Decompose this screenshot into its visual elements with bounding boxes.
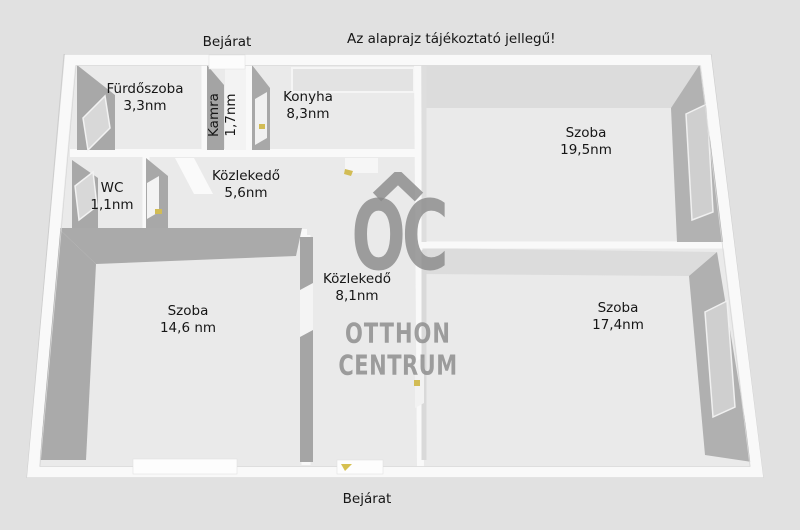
wall-face-corridor-left	[300, 237, 313, 462]
room-label-szoba-146: Szoba 14,6 nm	[160, 303, 216, 337]
room-area: 8,3nm	[283, 106, 333, 123]
door-marker-konyha	[259, 124, 265, 129]
room-area: 1,7nm	[223, 93, 240, 137]
room-label-kozlekedo-56: Közlekedő 5,6nm	[212, 168, 280, 202]
opening-bottom-szoba146	[133, 459, 237, 474]
room-name: Szoba	[598, 300, 639, 316]
ceiling-band-szoba-195	[422, 65, 700, 108]
floorplan-page: OC OTTHON CENTRUM Bejárat Az alaprajz tá…	[0, 0, 800, 530]
room-area: 17,4nm	[592, 317, 644, 334]
door-szoba-146	[300, 283, 313, 337]
room-label-furdoszoba: Fürdőszoba 3,3nm	[107, 81, 184, 115]
room-label-szoba-174: Szoba 17,4nm	[592, 300, 644, 334]
entrance-label-bottom: Bejárat	[343, 491, 392, 507]
room-label-kamra: Kamra 1,7nm	[206, 93, 240, 137]
room-area: 5,6nm	[212, 185, 280, 202]
room-name: WC	[101, 180, 124, 196]
floorplan-drawing	[0, 0, 800, 530]
ceiling-band-szoba-174	[421, 248, 717, 276]
room-area: 3,3nm	[107, 98, 184, 115]
room-name: Közlekedő	[323, 271, 391, 287]
room-name: Szoba	[566, 125, 607, 141]
disclaimer-note: Az alaprajz tájékoztató jellegű!	[347, 31, 556, 47]
room-name: Közlekedő	[212, 168, 280, 184]
door-marker-szoba174	[414, 380, 420, 386]
room-name: Fürdőszoba	[107, 81, 184, 97]
room-label-kozlekedo-81: Közlekedő 8,1nm	[323, 271, 391, 305]
room-area: 14,6 nm	[160, 320, 216, 337]
wall-face-light-174	[422, 250, 427, 460]
entrance-opening-top	[209, 55, 245, 69]
room-label-wc: WC 1,1nm	[90, 180, 133, 214]
room-label-szoba-195: Szoba 19,5nm	[560, 125, 612, 159]
room-name: Szoba	[168, 303, 209, 319]
entrance-label-top: Bejárat	[203, 34, 252, 50]
door-marker-wc	[155, 209, 162, 214]
wall-main-vertical	[418, 62, 421, 468]
room-area: 8,1nm	[323, 288, 391, 305]
room-label-konyha: Konyha 8,3nm	[283, 89, 333, 123]
room-name: Kamra	[206, 93, 222, 137]
room-name: Konyha	[283, 89, 333, 105]
room-area: 1,1nm	[90, 197, 133, 214]
door-konyha	[255, 92, 267, 145]
wall-face-light-195	[422, 66, 427, 242]
room-area: 19,5nm	[560, 142, 612, 159]
